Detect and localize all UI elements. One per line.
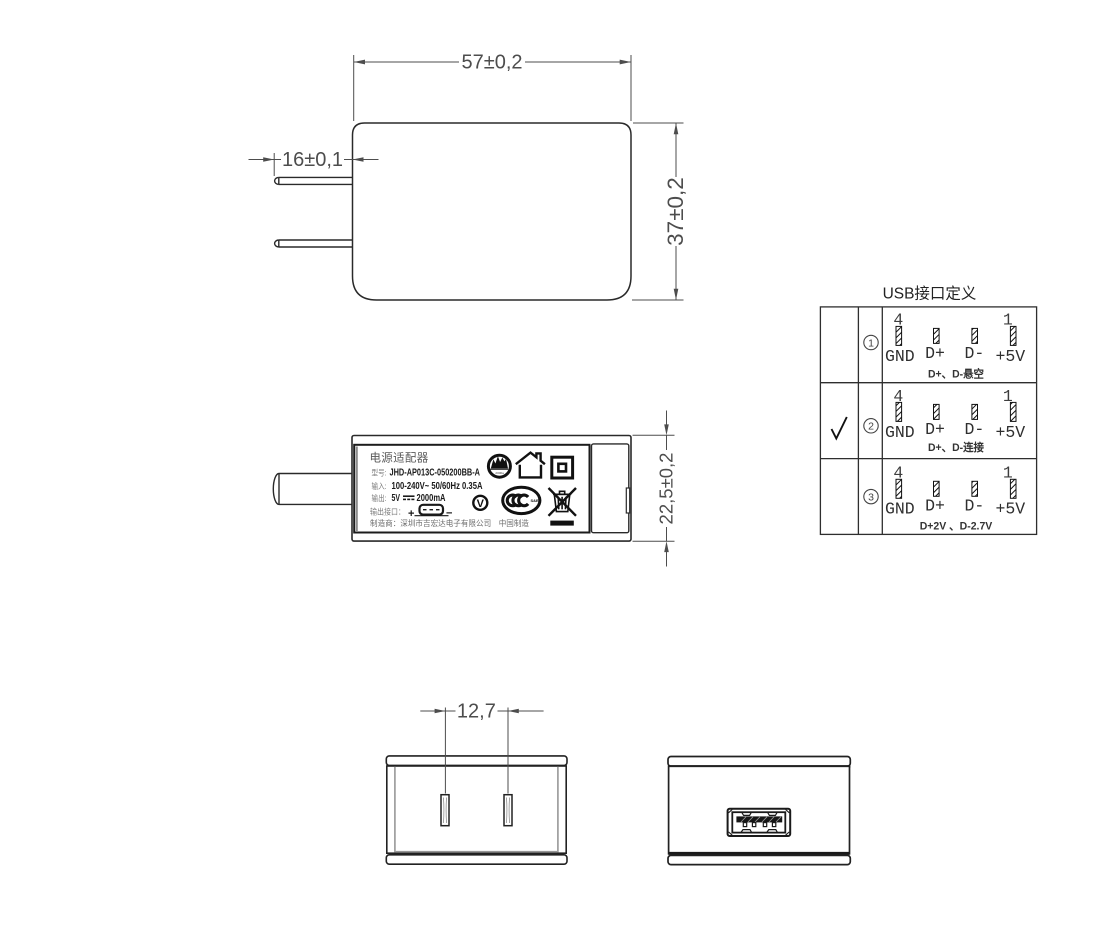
svg-text:2000a: 2000a bbox=[495, 471, 504, 475]
svg-text:GND: GND bbox=[885, 499, 915, 518]
svg-text:D+: D+ bbox=[925, 344, 945, 363]
svg-text:100-240V~ 50/60Hz 0.35A: 100-240V~ 50/60Hz 0.35A bbox=[392, 481, 483, 492]
svg-text:2000mA: 2000mA bbox=[417, 493, 446, 504]
svg-text:D-: D- bbox=[964, 496, 984, 515]
svg-text:输出:: 输出: bbox=[372, 493, 387, 503]
svg-text:57±0,2: 57±0,2 bbox=[461, 52, 522, 74]
svg-text:37±0,2: 37±0,2 bbox=[663, 177, 688, 246]
svg-text:3: 3 bbox=[868, 491, 874, 503]
svg-text:GND: GND bbox=[885, 347, 915, 366]
svg-text:1: 1 bbox=[868, 337, 874, 349]
svg-text:USB接口定义: USB接口定义 bbox=[883, 285, 977, 303]
svg-text:+5V: +5V bbox=[995, 423, 1025, 442]
svg-text:D+: D+ bbox=[925, 420, 945, 439]
svg-text:电源适配器: 电源适配器 bbox=[370, 451, 429, 465]
svg-text:+5V: +5V bbox=[995, 499, 1025, 518]
svg-text:D+2V 、D-2.7V: D+2V 、D-2.7V bbox=[920, 520, 993, 532]
svg-text:输出接口：: 输出接口： bbox=[370, 507, 405, 517]
svg-text:D+、D-连接: D+、D-连接 bbox=[928, 440, 984, 454]
svg-text:制造商：深圳市吉宏达电子有限公司 中国制造: 制造商：深圳市吉宏达电子有限公司 中国制造 bbox=[370, 518, 529, 528]
svg-text:2: 2 bbox=[868, 421, 874, 433]
svg-text:5V: 5V bbox=[392, 493, 401, 504]
svg-text:22,5±0,2: 22,5±0,2 bbox=[656, 453, 677, 525]
svg-text:D+、D-悬空: D+、D-悬空 bbox=[928, 366, 984, 380]
svg-text:GND: GND bbox=[885, 423, 915, 442]
svg-text:−: − bbox=[446, 508, 452, 520]
svg-text:D+: D+ bbox=[925, 496, 945, 515]
svg-text:D-: D- bbox=[964, 420, 984, 439]
svg-text:+5V: +5V bbox=[995, 347, 1025, 366]
svg-text:12,7: 12,7 bbox=[457, 701, 496, 723]
svg-text:V: V bbox=[477, 498, 485, 510]
svg-text:型号:: 型号: bbox=[372, 468, 387, 477]
svg-text:JHD-AP013C-050200BB-A: JHD-AP013C-050200BB-A bbox=[390, 468, 481, 479]
svg-text:+: + bbox=[408, 508, 414, 520]
svg-text:D-: D- bbox=[964, 344, 984, 363]
svg-text:输入:: 输入: bbox=[372, 481, 387, 491]
svg-text:S&E: S&E bbox=[531, 498, 540, 503]
svg-text:16±0,1: 16±0,1 bbox=[282, 149, 343, 171]
